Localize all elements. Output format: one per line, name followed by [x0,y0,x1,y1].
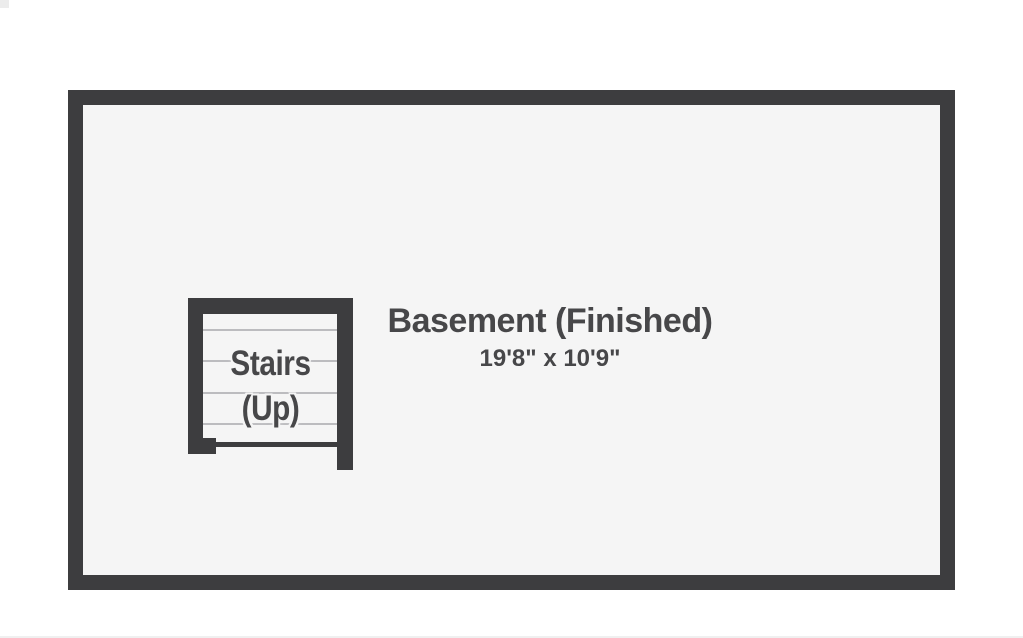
stairs-direction-text: (Up) [188,386,352,431]
stairs-label-text: Stairs [188,341,352,386]
stair-tread-line [203,329,337,331]
corner-artifact [0,0,9,8]
room-dimensions: 19'8" x 10'9" [360,342,740,376]
stairs-unit: Stairs (Up) [188,298,353,470]
floorplan-canvas: Stairs (Up) Basement (Finished) 19'8" x … [0,0,1023,638]
stairs-label: Stairs (Up) [174,341,367,431]
stairs-wall-top [188,298,353,314]
stairs-bottom-edge [203,442,337,447]
room-name: Basement (Finished) [360,300,740,342]
room-label: Basement (Finished) 19'8" x 10'9" [360,300,740,376]
